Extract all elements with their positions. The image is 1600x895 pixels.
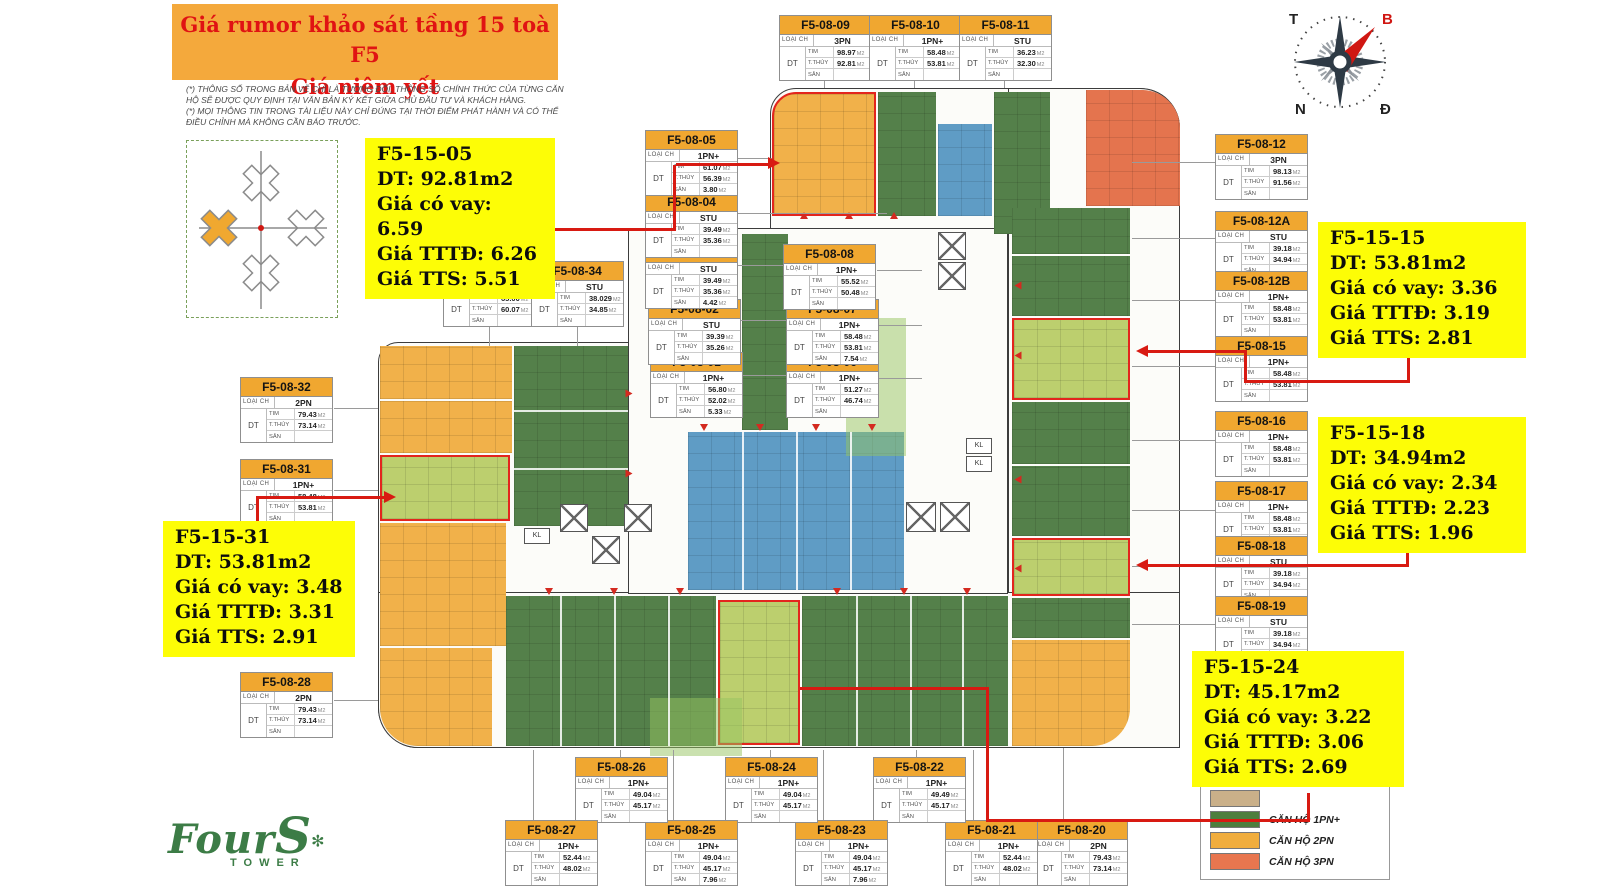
unit-area-rows: DTTIM56.80M2T.THỦY52.02M2SÂN5.33M2 (651, 383, 742, 417)
unit-area-row: T.THỦY56.39M2 (672, 173, 737, 184)
unit-divider (962, 596, 964, 746)
callout-dt: DT: 45.17m2 (1204, 680, 1392, 705)
unit-type-value: STU (1250, 231, 1307, 242)
unit-type-row: LOẠI CHSTU (646, 212, 737, 223)
entry-arrow-icon (676, 588, 684, 595)
plan-unit-block (1012, 466, 1130, 536)
unit-area-name: T.THỦY (822, 863, 850, 873)
unit-area-value: 45.17M2 (850, 864, 887, 873)
elevator-core-icon (938, 262, 966, 290)
m2-suffix: M2 (318, 506, 326, 512)
callout-dt: DT: 53.81m2 (1330, 251, 1514, 276)
unit-type-row: LOẠI CH1PN+ (646, 150, 737, 161)
price-callout-F5-15-31: F5-15-31DT: 53.81m2Giá có vay: 3.48Giá T… (163, 521, 355, 657)
unit-area-row: T.THỦY91.56M2 (1242, 177, 1307, 188)
unit-type-label: LOẠI CH (1036, 840, 1070, 851)
unit-type-label: LOẠI CH (960, 35, 994, 46)
unit-area-value: 52.44M2 (560, 853, 597, 862)
unit-area-sub: TIM79.43M2T.THỦY73.14M2SÂN (267, 704, 332, 737)
unit-area-name: TIM (1242, 568, 1270, 578)
unit-area-name: TIM (1242, 303, 1270, 313)
unit-area-value: 53.81M2 (841, 343, 878, 352)
m2-suffix: M2 (724, 410, 732, 416)
m2-suffix: M2 (1023, 867, 1031, 873)
unit-area-value: 39.49M2 (700, 225, 737, 234)
unit-table-F5-08-12B: F5-08-12BLOẠI CH1PN+DTTIM58.48M2T.THỦY53… (1215, 271, 1308, 337)
unit-area-rows: DTTIM98.97M2T.THỦY92.81M2SÂN (780, 46, 871, 80)
unit-area-row: T.THỦY53.81M2 (267, 502, 332, 513)
unit-area-value: 73.14M2 (1090, 864, 1127, 873)
plan-unit-block (380, 523, 506, 646)
unit-area-rows: DTTIM49.04M2T.THỦY45.17M2SÂN7.96M2 (796, 851, 887, 885)
m2-suffix: M2 (1113, 856, 1121, 862)
unit-table-title: F5-08-10 (870, 16, 961, 35)
table-connector-line (973, 750, 974, 820)
callout-leader-line (986, 687, 989, 822)
unit-area-name: TIM (813, 384, 841, 394)
unit-area-row: TIM58.48M2 (1242, 368, 1307, 379)
unit-area-sub: TIM56.80M2T.THỦY52.02M2SÂN5.33M2 (677, 384, 742, 417)
unit-dt-label: DT (726, 789, 752, 822)
unit-area-sub: TIM98.13M2T.THỦY91.56M2SÂN (1242, 166, 1307, 199)
unit-type-value: 1PN+ (980, 840, 1037, 851)
unit-area-value: 98.13M2 (1270, 167, 1307, 176)
compass-east-label: Đ (1380, 101, 1391, 118)
unit-area-row: T.THỦY48.02M2 (972, 863, 1037, 874)
unit-area-name: SÂN (1062, 874, 1090, 885)
unit-dt-label: DT (787, 384, 813, 417)
unit-table-F5-08-24: F5-08-24LOẠI CH1PN+DTTIM49.04M2T.THỦY45.… (725, 757, 818, 823)
unit-type-row: LOẠI CH1PN+ (1216, 356, 1307, 367)
unit-area-row: TIM39.39M2 (675, 331, 740, 342)
leader-arrow-icon (768, 157, 780, 169)
unit-area-row: T.THỦY46.74M2 (813, 395, 878, 406)
unit-area-name: T.THỦY (1242, 254, 1270, 264)
unit-type-value: 1PN+ (818, 264, 875, 275)
unit-area-rows: DTTIM79.43M2T.THỦY73.14M2SÂN (241, 408, 332, 442)
m2-suffix: M2 (860, 357, 868, 363)
unit-dt-label: DT (960, 47, 986, 80)
unit-type-value: 3PN (814, 35, 871, 46)
unit-area-sub: TIM38.029M2T.THỦY34.85M2SÂN (558, 293, 623, 326)
unit-area-value: 55.52M2 (838, 277, 875, 286)
legend-row: CĂN HỘ 3PN (1210, 853, 1380, 870)
unit-area-name: TIM (558, 293, 586, 303)
unit-table-F5-08-11: F5-08-11LOẠI CHSTUDTTIM36.23M2T.THỦY32.3… (959, 15, 1052, 81)
m2-suffix: M2 (873, 856, 881, 862)
callout-gia-tts: Giá TTS: 1.96 (1330, 521, 1514, 546)
unit-table-title: F5-08-31 (241, 460, 332, 479)
m2-suffix: M2 (318, 424, 326, 430)
unit-area-name: T.THỦY (532, 863, 560, 873)
callout-leader-line (1244, 380, 1410, 383)
entry-arrow-icon (1015, 476, 1022, 484)
unit-area-row: T.THỦY73.14M2 (267, 715, 332, 726)
unit-area-sub: TIM58.48M2T.THỦY53.81M2SÂN7.54M2 (813, 331, 878, 364)
unit-type-label: LOẠI CH (651, 372, 685, 383)
unit-area-name: T.THỦY (1242, 579, 1270, 589)
unit-type-value: 1PN+ (830, 840, 887, 851)
unit-area-row: SÂN7.96M2 (822, 874, 887, 885)
unit-table-title: F5-08-23 (796, 821, 887, 840)
unit-area-name: T.THỦY (1242, 454, 1270, 464)
unit-table-title: F5-08-15 (1216, 337, 1307, 356)
unit-dt-label: DT (1216, 303, 1242, 336)
unit-area-name: TIM (1242, 628, 1270, 638)
callout-gia-vay: Giá có vay: 6.59 (377, 192, 543, 242)
unit-area-value: 45.17M2 (630, 801, 667, 810)
unit-divider (796, 432, 798, 590)
plan-unit-block (380, 346, 512, 399)
unit-area-row: T.THỦY73.14M2 (267, 420, 332, 431)
disclaimer-line-1: (*) THÔNG SỐ TRONG BẢN VẼ CHỈ LÀ TƯƠNG Đ… (186, 84, 568, 106)
entry-arrow-icon (1015, 352, 1022, 360)
unit-table-F5-08-31: F5-08-31LOẠI CH1PN+DTTIM58.48M2T.THỦY53.… (240, 459, 333, 525)
unit-type-row: LOẠI CH1PN+ (726, 777, 817, 788)
unit-divider (560, 596, 562, 746)
unit-type-value: 1PN+ (685, 372, 742, 383)
unit-type-label: LOẠI CH (1216, 231, 1250, 242)
price-callout-F5-15-05: F5-15-05DT: 92.81m2Giá có vay: 6.59Giá T… (365, 138, 555, 299)
unit-area-row: SÂN (896, 69, 961, 80)
unit-table-title: F5-08-32 (241, 378, 332, 397)
m2-suffix: M2 (1037, 51, 1045, 57)
plan-unit-block (1012, 208, 1130, 254)
m2-suffix: M2 (1293, 170, 1301, 176)
unit-area-rows: DTTIM58.48M2T.THỦY53.81M2SÂN7.54M2 (787, 330, 878, 364)
unit-area-name: T.THỦY (972, 863, 1000, 873)
elevator-core-icon (624, 504, 652, 532)
unit-area-row: TIM79.43M2 (267, 409, 332, 420)
unit-type-label: LOẠI CH (787, 372, 821, 383)
unit-type-value: 1PN+ (1250, 431, 1307, 442)
unit-dt-label: DT (796, 852, 822, 885)
unit-area-sub: TIM49.49M2T.THỦY45.17M2SÂN (900, 789, 965, 822)
unit-divider (514, 468, 628, 470)
unit-type-value: 2PN (275, 692, 332, 703)
unit-area-row: SÂN (972, 874, 1037, 885)
unit-block-F5-08-05 (772, 92, 876, 216)
unit-area-value: 46.74M2 (841, 396, 878, 405)
unit-type-label: LOẠI CH (1216, 431, 1250, 442)
unit-area-row: T.THỦY45.17M2 (822, 863, 887, 874)
unit-area-row: SÂN (986, 69, 1051, 80)
unit-area-name: T.THỦY (267, 420, 295, 430)
unit-area-value: 56.80M2 (705, 385, 742, 394)
unit-area-sub: TIM61.07M2T.THỦY56.39M2SÂN3.80M2 (672, 162, 737, 195)
unit-area-name: SÂN (1242, 325, 1270, 336)
unit-area-name: T.THỦY (558, 304, 586, 314)
unit-area-row: TIM49.04M2 (672, 852, 737, 863)
unit-area-name: SÂN (813, 406, 841, 417)
table-connector-line (1132, 440, 1215, 441)
unit-type-legend: CĂN HỘ 1PN+CĂN HỘ 2PNCĂN HỘ 3PN (1200, 780, 1390, 880)
unit-area-name: T.THỦY (813, 395, 841, 405)
unit-area-rows: DTTIM49.49M2T.THỦY45.17M2SÂN (874, 788, 965, 822)
unit-block-F5-08-20 (1012, 640, 1130, 746)
unit-type-row: LOẠI CH1PN+ (784, 264, 875, 275)
unit-area-rows: DTTIM79.43M2T.THỦY73.14M2SÂN (1036, 851, 1127, 885)
unit-divider (668, 596, 670, 746)
unit-dt-label: DT (946, 852, 972, 885)
unit-area-row: SÂN (675, 353, 740, 364)
unit-type-row: LOẠI CH1PN+ (646, 840, 737, 851)
kl-shaft-label: KL (966, 438, 992, 454)
unit-area-row: TIM36.23M2 (986, 47, 1051, 58)
unit-dt-label: DT (651, 384, 677, 417)
unit-area-name: TIM (532, 852, 560, 862)
unit-area-name: TIM (813, 331, 841, 341)
unit-area-value: 58.48M2 (1270, 369, 1307, 378)
unit-table-title: F5-08-09 (780, 16, 871, 35)
logo-four-text: Four (168, 816, 275, 863)
table-connector-line (877, 270, 922, 271)
unit-area-row: SÂN (672, 246, 737, 257)
unit-area-name: TIM (1062, 852, 1090, 862)
m2-suffix: M2 (803, 793, 811, 799)
unit-area-value: 38.029M2 (586, 294, 623, 303)
legend-label: CĂN HỘ 3PN (1269, 856, 1334, 868)
unit-area-value: 39.39M2 (703, 332, 740, 341)
fours-tower-logo: FourS✻ TOWER (168, 806, 325, 869)
unit-area-name: T.THỦY (675, 342, 703, 352)
compass-south-label: N (1295, 101, 1306, 118)
unit-type-value: STU (683, 319, 740, 330)
m2-suffix: M2 (723, 290, 731, 296)
unit-area-sub: TIM49.04M2T.THỦY45.17M2SÂN (752, 789, 817, 822)
unit-area-sub: TIM39.49M2T.THỦY35.36M2SÂN (672, 224, 737, 257)
unit-area-name: T.THỦY (806, 58, 834, 68)
table-connector-line (1132, 162, 1215, 163)
unit-area-name: TIM (677, 384, 705, 394)
unit-type-row: LOẠI CH1PN+ (787, 372, 878, 383)
unit-area-rows: DTTIM52.44M2T.THỦY48.02M2SÂN (946, 851, 1037, 885)
unit-table-title: F5-08-11 (960, 16, 1051, 35)
unit-type-label: LOẠI CH (506, 840, 540, 851)
m2-suffix: M2 (318, 719, 326, 725)
m2-suffix: M2 (1293, 318, 1301, 324)
unit-area-sub: TIM55.52M2T.THỦY50.48M2SÂN (810, 276, 875, 309)
compass-west-label: T (1289, 11, 1298, 28)
callout-gia-tttd: Giá TTTĐ: 3.31 (175, 600, 343, 625)
leader-arrow-icon (384, 491, 396, 503)
unit-area-rows: DTTIM39.39M2T.THỦY35.26M2SÂN (649, 330, 740, 364)
unit-area-row: TIM56.80M2 (677, 384, 742, 395)
unit-table-title: F5-08-12B (1216, 272, 1307, 291)
unit-type-row: LOẠI CH1PN+ (241, 479, 332, 490)
unit-table-title: F5-08-08 (784, 245, 875, 264)
entry-arrow-icon (1015, 282, 1022, 290)
unit-table-F5-08-12A: F5-08-12ALOẠI CHSTUDTTIM39.18M2T.THỦY34.… (1215, 211, 1308, 277)
unit-type-row: LOẠI CH1PN+ (787, 319, 878, 330)
unit-area-name: SÂN (672, 874, 700, 885)
callout-unit-id: F5-15-18 (1330, 421, 1514, 446)
unit-area-sub: TIM39.39M2T.THỦY35.26M2SÂN (675, 331, 740, 364)
unit-type-label: LOẠI CH (646, 840, 680, 851)
unit-area-row: T.THỦY34.94M2 (1242, 579, 1307, 590)
m2-suffix: M2 (1293, 383, 1301, 389)
m2-suffix: M2 (1293, 447, 1301, 453)
unit-block-F5-08-28 (380, 648, 492, 746)
unit-area-rows: DTTIM58.48M2T.THỦY53.81M2SÂN (1216, 302, 1307, 336)
unit-area-name: T.THỦY (1242, 639, 1270, 649)
unit-area-sub: TIM39.49M2T.THỦY35.36M2SÂN4.42M2 (672, 275, 737, 308)
unit-type-label: LOẠI CH (787, 319, 821, 330)
m2-suffix: M2 (1293, 632, 1301, 638)
unit-block-F5-08-31 (380, 455, 510, 521)
callout-gia-vay: Giá có vay: 3.48 (175, 575, 343, 600)
unit-type-label: LOẠI CH (241, 397, 275, 408)
callout-gia-tttd: Giá TTTĐ: 3.06 (1204, 730, 1392, 755)
unit-area-value: 36.23M2 (1014, 48, 1051, 57)
unit-type-label: LOẠI CH (726, 777, 760, 788)
unit-table-F5-08-16: F5-08-16LOẠI CH1PN+DTTIM58.48M2T.THỦY53.… (1215, 411, 1308, 477)
unit-type-row: LOẠI CH1PN+ (1216, 501, 1307, 512)
unit-area-row: T.THỦY52.02M2 (677, 395, 742, 406)
entry-arrow-icon (833, 588, 841, 595)
table-connector-line (1132, 366, 1215, 367)
site-plan-thumbnail (186, 140, 338, 318)
plan-unit-block (802, 596, 1008, 746)
unit-area-row: TIM39.18M2 (1242, 243, 1307, 254)
plan-unit-block (650, 698, 742, 756)
unit-area-sub: TIM79.43M2T.THỦY73.14M2SÂN (1062, 852, 1127, 885)
unit-type-value: 1PN+ (1250, 356, 1307, 367)
unit-type-row: LOẠI CH2PN (241, 397, 332, 408)
unit-area-rows: DTTIM58.48M2T.THỦY53.81M2SÂN (1216, 442, 1307, 476)
unit-area-row: TIM79.43M2 (1062, 852, 1127, 863)
unit-area-value: 34.85M2 (586, 305, 623, 314)
unit-area-value: 58.48M2 (1270, 444, 1307, 453)
disclaimer-text: (*) THÔNG SỐ TRONG BẢN VẼ CHỈ LÀ TƯƠNG Đ… (186, 84, 568, 128)
m2-suffix: M2 (723, 166, 731, 172)
unit-table-F5-08-20: F5-08-20LOẠI CH2PNDTTIM79.43M2T.THỦY73.1… (1035, 820, 1128, 886)
unit-type-label: LOẠI CH (646, 150, 680, 161)
callout-leader-line (676, 163, 768, 166)
unit-type-row: LOẠI CH3PN (1216, 154, 1307, 165)
unit-type-label: LOẠI CH (1216, 616, 1250, 627)
unit-area-row: SÂN (1242, 465, 1307, 476)
unit-area-row: T.THỦY53.81M2 (1242, 454, 1307, 465)
unit-type-row: LOẠI CH1PN+ (1216, 291, 1307, 302)
plan-unit-block (1012, 402, 1130, 464)
unit-area-rows: DTTIM51.27M2T.THỦY46.74M2SÂN (787, 383, 878, 417)
callout-gia-vay: Giá có vay: 2.34 (1330, 471, 1514, 496)
legend-swatch (1210, 853, 1260, 870)
unit-area-name: TIM (1242, 243, 1270, 253)
table-connector-line (1132, 300, 1215, 301)
unit-type-label: LOẠI CH (1216, 501, 1250, 512)
unit-type-row: LOẠI CHSTU (1216, 616, 1307, 627)
m2-suffix: M2 (1293, 247, 1301, 253)
unit-table-title: F5-08-21 (946, 821, 1037, 840)
m2-suffix: M2 (803, 804, 811, 810)
entry-arrow-icon (545, 588, 553, 595)
unit-area-value: 3.80M2 (700, 185, 737, 194)
m2-suffix: M2 (1293, 572, 1301, 578)
unit-area-value: 45.17M2 (700, 864, 737, 873)
unit-area-row: T.THỦY60.07M2 (470, 304, 535, 315)
m2-suffix: M2 (864, 335, 872, 341)
unit-area-rows: DTTIM52.44M2T.THỦY48.02M2SÂN (506, 851, 597, 885)
unit-area-value: 7.96M2 (850, 875, 887, 884)
m2-suffix: M2 (1293, 517, 1301, 523)
unit-area-name: SÂN (672, 297, 700, 308)
unit-area-value: 39.18M2 (1270, 244, 1307, 253)
m2-suffix: M2 (653, 804, 661, 810)
unit-type-row: LOẠI CH1PN+ (651, 372, 742, 383)
unit-area-rows: DTTIM39.49M2T.THỦY35.36M2SÂN4.42M2 (646, 274, 737, 308)
m2-suffix: M2 (613, 297, 621, 303)
unit-table-title: F5-08-18 (1216, 537, 1307, 556)
unit-dt-label: DT (646, 275, 672, 308)
unit-area-value: 45.17M2 (780, 801, 817, 810)
unit-area-name: TIM (1242, 166, 1270, 176)
unit-area-name: T.THỦY (752, 800, 780, 810)
unit-area-row: SÂN (558, 315, 623, 326)
m2-suffix: M2 (873, 867, 881, 873)
unit-type-value: 1PN+ (680, 150, 737, 161)
unit-area-row: SÂN (1062, 874, 1127, 885)
table-connector-line (334, 490, 378, 491)
unit-area-name: TIM (752, 789, 780, 799)
floorplan-canvas: Giá rumor khảo sát tầng 15 toà F5 Giá ni… (0, 0, 1600, 895)
unit-area-name: TIM (1242, 443, 1270, 453)
unit-area-sub: TIM49.04M2T.THỦY45.17M2SÂN7.96M2 (672, 852, 737, 885)
site-plan-sketch (187, 141, 336, 316)
callout-leader-line (1407, 354, 1410, 383)
unit-type-value: STU (680, 212, 737, 223)
unit-area-row: TIM58.48M2 (1242, 303, 1307, 314)
unit-area-name: TIM (267, 704, 295, 714)
unit-area-name: SÂN (532, 874, 560, 885)
unit-area-row: T.THỦY34.85M2 (558, 304, 623, 315)
m2-suffix: M2 (723, 867, 731, 873)
m2-suffix: M2 (723, 177, 731, 183)
unit-area-row: SÂN4.42M2 (672, 297, 737, 308)
m2-suffix: M2 (728, 399, 736, 405)
unit-area-name: TIM (986, 47, 1014, 57)
unit-area-name: SÂN (972, 874, 1000, 885)
m2-suffix: M2 (719, 301, 727, 307)
unit-table-title: F5-08-25 (646, 821, 737, 840)
m2-suffix: M2 (318, 413, 326, 419)
unit-area-row: T.THỦY45.17M2 (900, 800, 965, 811)
elevator-core-icon (940, 502, 970, 532)
unit-area-value: 35.36M2 (700, 236, 737, 245)
unit-area-sub: TIM58.48M2T.THỦY53.81M2SÂN (1242, 443, 1307, 476)
unit-area-name: T.THỦY (1062, 863, 1090, 873)
unit-table-F5-08-32: F5-08-32LOẠI CH2PNDTTIM79.43M2T.THỦY73.1… (240, 377, 333, 443)
unit-dt-label: DT (784, 276, 810, 309)
unit-area-row: TIM58.48M2 (1242, 443, 1307, 454)
m2-suffix: M2 (653, 793, 661, 799)
unit-area-name: T.THỦY (267, 502, 295, 512)
unit-area-sub: TIM58.48M2T.THỦY53.81M2SÂN (896, 47, 961, 80)
unit-area-name: TIM (1242, 513, 1270, 523)
unit-type-row: LOẠI CHSTU (649, 319, 740, 330)
table-connector-line (334, 408, 378, 409)
unit-area-value: 58.48M2 (841, 332, 878, 341)
unit-area-name: SÂN (470, 315, 498, 326)
unit-area-value: 58.48M2 (924, 48, 961, 57)
m2-suffix: M2 (1293, 181, 1301, 187)
unit-area-row: SÂN (900, 811, 965, 822)
unit-type-row: LOẠI CH1PN+ (874, 777, 965, 788)
entry-arrow-icon (1015, 565, 1022, 573)
unit-area-value: 79.43M2 (295, 410, 332, 419)
callout-unit-id: F5-15-15 (1330, 226, 1514, 251)
